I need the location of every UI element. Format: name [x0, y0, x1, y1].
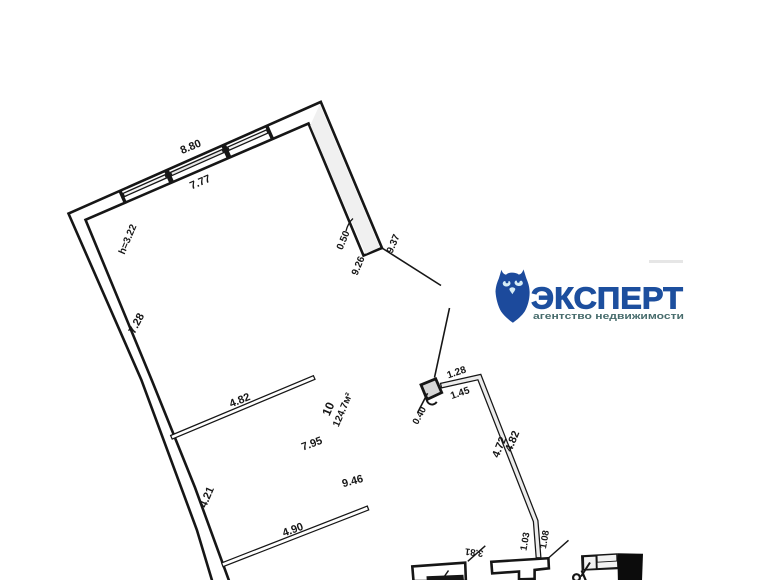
- svg-text:8.80: 8.80: [179, 138, 203, 157]
- svg-text:1.08: 1.08: [538, 530, 552, 550]
- svg-text:4.21: 4.21: [198, 485, 217, 509]
- svg-text:7.95: 7.95: [300, 435, 324, 454]
- svg-text:0.50: 0.50: [335, 229, 353, 252]
- svg-text:1.45: 1.45: [449, 385, 471, 402]
- svg-text:4.82: 4.82: [503, 429, 522, 453]
- svg-text:9.46: 9.46: [341, 473, 365, 490]
- svg-text:агентство недвижимости: агентство недвижимости: [533, 311, 684, 321]
- svg-text:9.26: 9.26: [350, 255, 368, 278]
- svg-text:3.81: 3.81: [464, 545, 484, 558]
- svg-text:9.37: 9.37: [385, 233, 403, 256]
- svg-text:1.03: 1.03: [519, 532, 533, 552]
- svg-text:7.77: 7.77: [188, 173, 212, 192]
- svg-text:0.40: 0.40: [411, 405, 429, 426]
- svg-text:7.28: 7.28: [127, 311, 148, 336]
- svg-text:h=3.22: h=3.22: [117, 223, 140, 257]
